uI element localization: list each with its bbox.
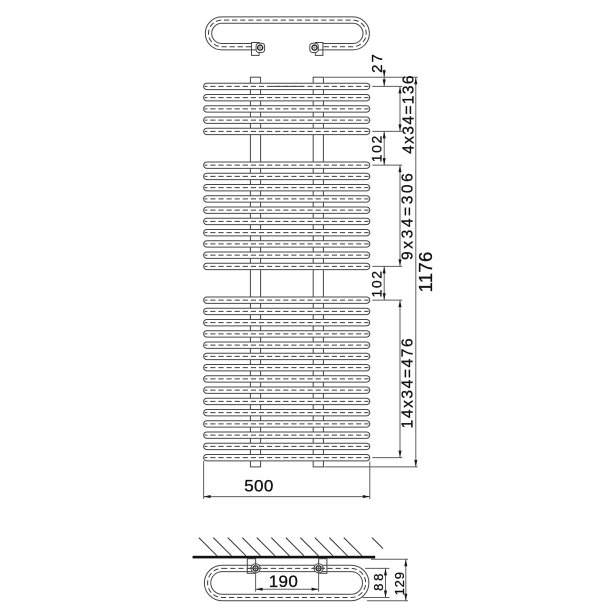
svg-text:500: 500 — [244, 477, 274, 496]
svg-text:9x34=306: 9x34=306 — [400, 171, 417, 260]
svg-text:1176: 1176 — [415, 251, 436, 292]
svg-text:129: 129 — [392, 571, 407, 595]
svg-text:14x34=476: 14x34=476 — [400, 337, 417, 429]
svg-text:27: 27 — [369, 52, 386, 73]
svg-text:88: 88 — [371, 571, 386, 591]
svg-text:102: 102 — [369, 134, 385, 162]
svg-text:190: 190 — [269, 572, 299, 591]
svg-text:4x34=136: 4x34=136 — [400, 74, 417, 154]
svg-text:102: 102 — [369, 269, 385, 297]
